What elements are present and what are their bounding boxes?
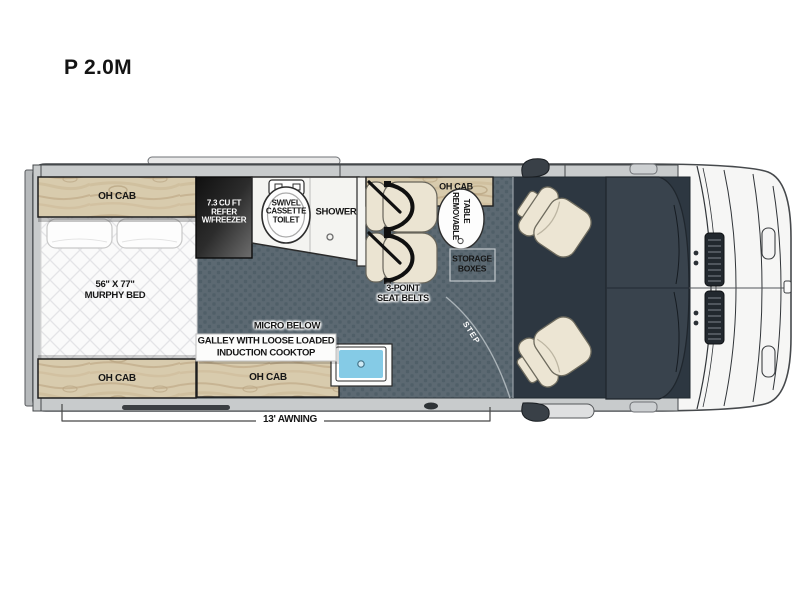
micro-label: MICRO BELOW: [254, 321, 320, 331]
door-roller: [424, 403, 438, 410]
dashboard: [606, 177, 689, 399]
storage-boxes-label: STORAGE BOXES: [452, 255, 492, 274]
floorplan: OH CAB 56" X 77" MURPHY BED OH CAB 7.3 C…: [0, 0, 800, 600]
wiper-top: [630, 164, 657, 174]
seat-belts-label: 3-POINT SEAT BELTS: [377, 283, 429, 303]
murphy-bed-label: 56" X 77" MURPHY BED: [85, 279, 146, 301]
wiper-bottom: [630, 402, 657, 412]
galley-label: GALLEY WITH LOOSE LOADED INDUCTION COOKT…: [198, 336, 335, 359]
mirror-top-icon: [522, 159, 549, 177]
murphy-bed-name: MURPHY BED: [85, 290, 146, 301]
sink-icon: [336, 347, 386, 381]
oh-cab-dinette-label: OH CAB: [439, 183, 473, 192]
sliding-door-track: [122, 405, 230, 410]
pillow-left: [47, 219, 112, 248]
removable-table-label-line2: TABLE: [462, 199, 470, 224]
mirror-bottom-icon: [522, 403, 549, 421]
removable-table-label-line1: REMOVABLE: [451, 192, 459, 240]
oh-cab-bottom-label: OH CAB: [98, 374, 136, 384]
refrigerator-label: 7.3 CU FT REFER W/FREEZER: [202, 199, 246, 225]
oh-cab-galley-label: OH CAB: [249, 373, 287, 383]
awning-label: 13' AWNING: [263, 415, 317, 425]
removable-table: [438, 189, 484, 249]
oh-cab-top-label: OH CAB: [98, 192, 136, 202]
pillow-right: [117, 219, 182, 248]
shower-wall: [357, 177, 366, 266]
murphy-bed-size: 56" X 77": [85, 279, 146, 290]
shower-label: SHOWER: [316, 207, 357, 217]
toilet-label: SWIVEL CASSETTE TOILET: [266, 200, 306, 225]
